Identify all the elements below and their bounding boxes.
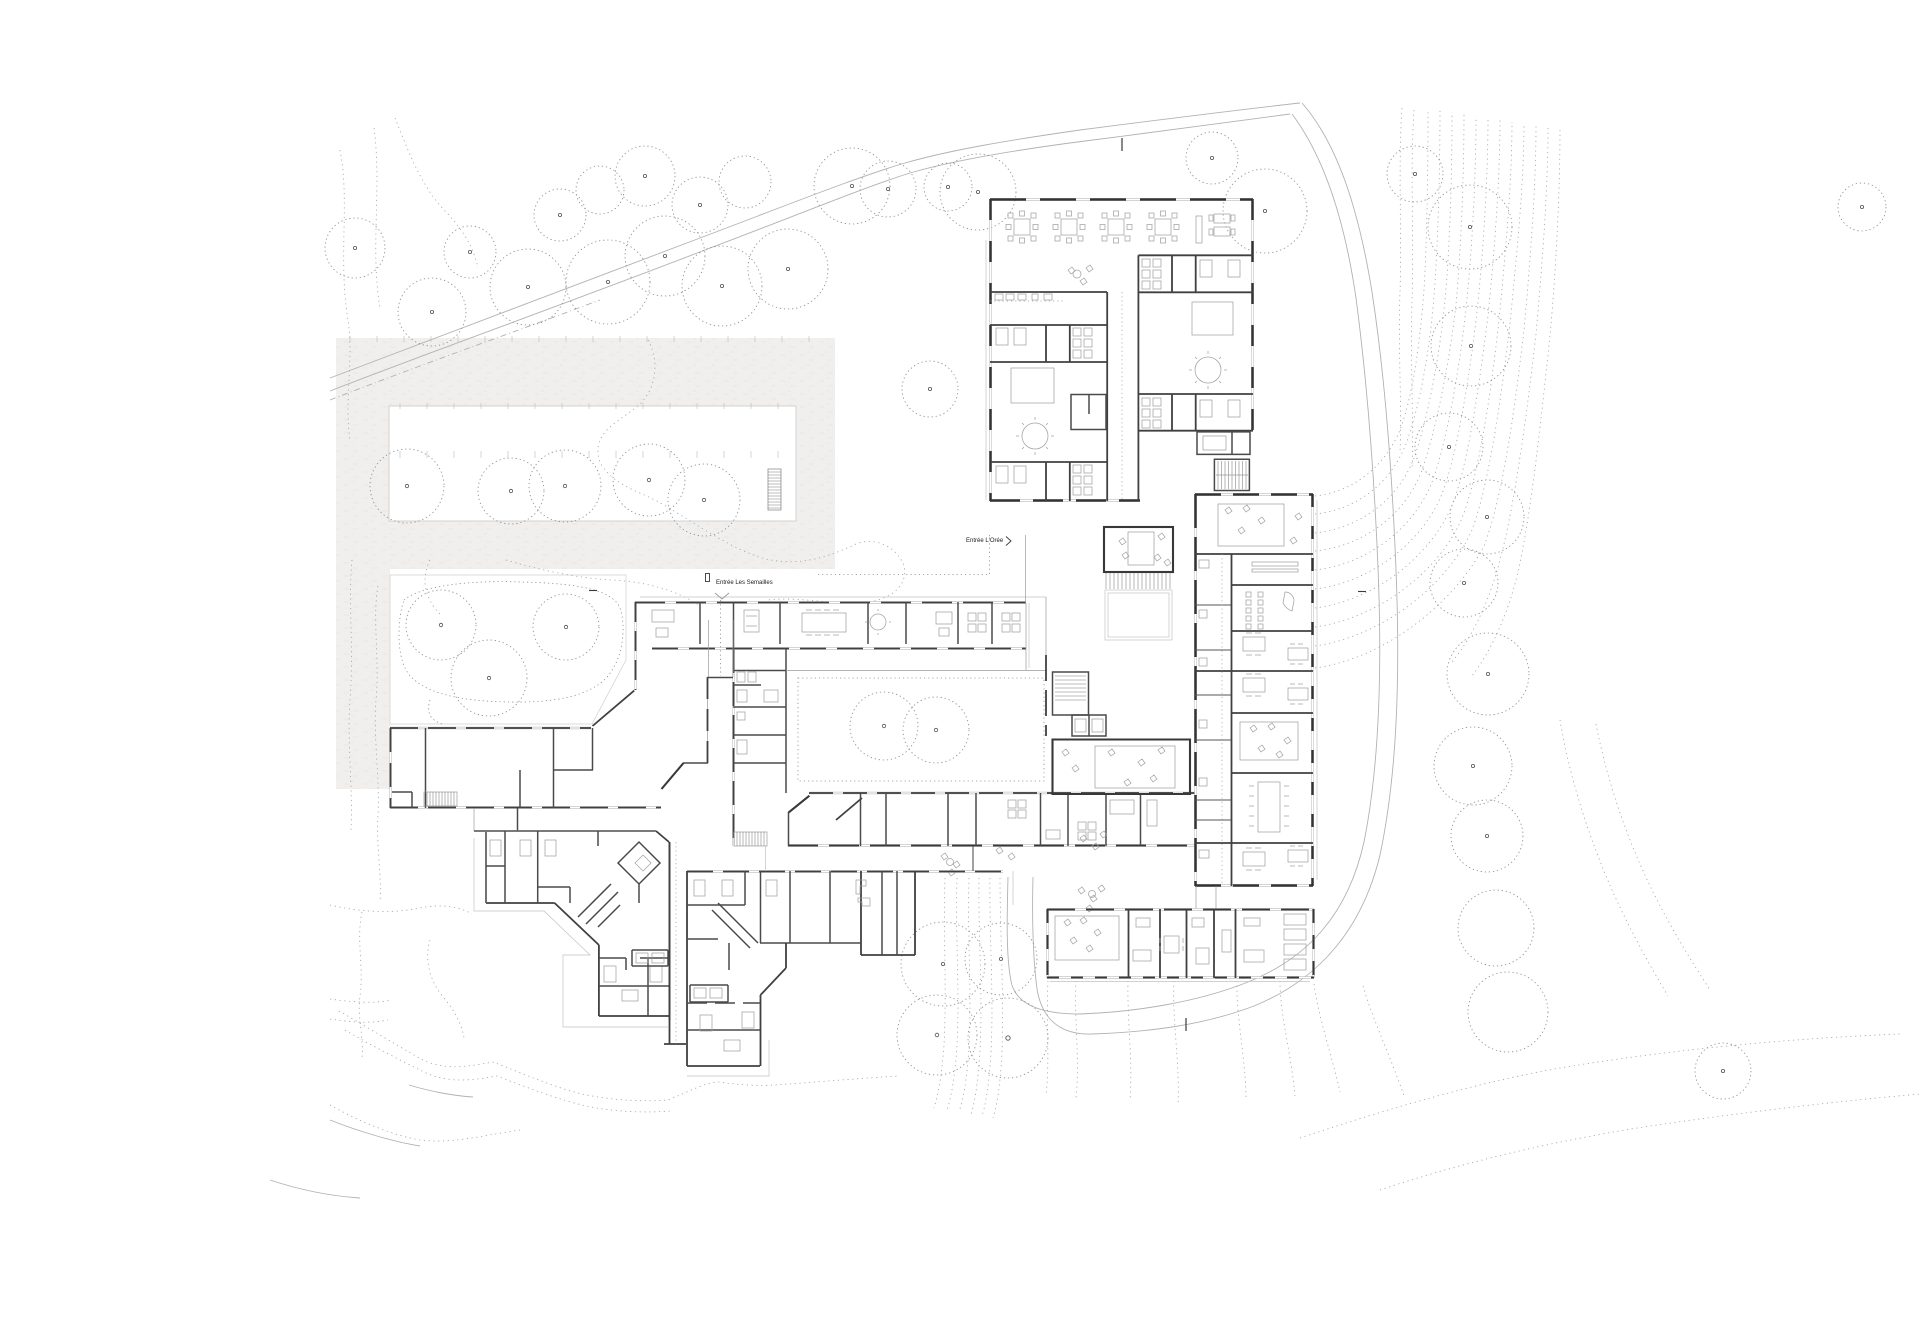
svg-text:Entrée L'Orée: Entrée L'Orée [966,538,1004,544]
svg-text:Entrée Les Semailles: Entrée Les Semailles [716,580,773,586]
